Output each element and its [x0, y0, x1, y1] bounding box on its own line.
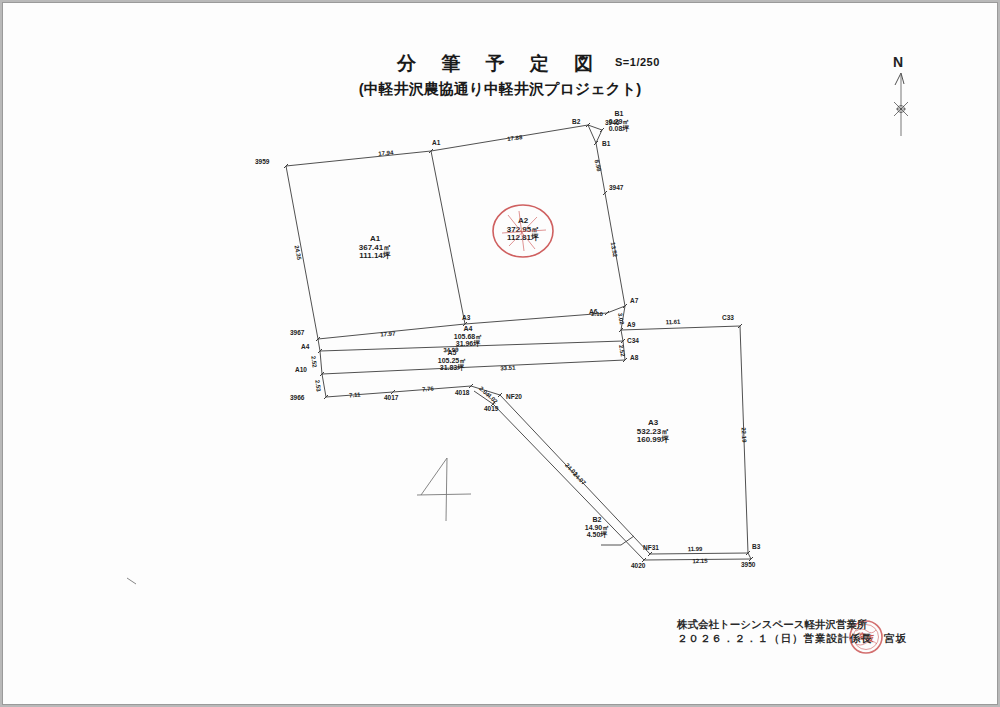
survey-point-label: A7 — [630, 297, 639, 304]
survey-point-label: NF20 — [506, 393, 522, 400]
boundary-line — [431, 151, 465, 324]
parcel-text: 105.25㎡ — [438, 357, 466, 364]
scanned-plan-page: 分 筆 予 定 図 S=1/250 (中軽井沢農協通り中軽井沢プロジェクト) N… — [2, 2, 998, 705]
parcel-text: A4 — [464, 325, 473, 332]
parcel-text: B2 — [593, 516, 602, 523]
survey-point-label: 3950 — [741, 561, 756, 568]
pencil-mark — [421, 458, 447, 495]
survey-point-label: C33 — [722, 314, 734, 321]
parcel-text: 14.90㎡ — [585, 524, 610, 531]
parcel-label-b1: B10.29㎡0.08坪 — [609, 110, 630, 132]
dimension-label: 2.53 — [314, 380, 322, 393]
boundary-line — [650, 553, 748, 554]
boundary-line — [474, 391, 644, 560]
survey-point-label: 3967 — [290, 329, 305, 336]
survey-point-label: A10 — [295, 366, 307, 373]
dimension-label: 33.51 — [500, 365, 516, 372]
parcel-label-a5: A5105.25㎡31.83坪 — [438, 349, 466, 371]
survey-point-label: B3 — [752, 543, 761, 550]
parcel-text: 0.08坪 — [609, 125, 630, 132]
survey-point-label: A3 — [462, 314, 471, 321]
survey-point-label: 4020 — [631, 562, 646, 569]
plan-drawing: N 宮坂 3959A1B23946B13947A7A6A9C34A8C33396… — [3, 3, 999, 706]
dimension-label: 13.52 — [610, 242, 619, 258]
survey-point-label: C34 — [627, 337, 639, 344]
survey-point-label: A9 — [627, 321, 636, 328]
boundary-line — [588, 125, 602, 143]
dimension-label: 2.52 — [618, 344, 626, 357]
parcel-text: 4.50坪 — [587, 531, 608, 538]
dimension-label: 7.76 — [422, 386, 435, 393]
boundary-line — [621, 326, 740, 330]
parcel-label-a1: A1367.41㎡111.14坪 — [359, 234, 391, 260]
survey-point-label: 4019 — [484, 405, 499, 412]
dimension-label: 2.10 — [591, 311, 603, 317]
parcel-text: 0.29㎡ — [609, 118, 630, 125]
survey-point-label: 3959 — [255, 158, 270, 165]
dimension-label: 17.88 — [507, 134, 523, 142]
dimension-label: 8.98 — [594, 159, 603, 172]
dimension-label: 22.19 — [741, 427, 748, 443]
dimension-label: 12.15 — [692, 558, 708, 564]
survey-point-label: A1 — [432, 139, 441, 146]
parcel-label-a3: A3532.23㎡160.99坪 — [637, 418, 669, 444]
north-arrow: N — [893, 54, 908, 136]
parcel-text: A5 — [448, 349, 457, 356]
parcel-text: 105.68㎡ — [454, 333, 482, 340]
survey-point-label: B2 — [572, 118, 581, 125]
dimension-label: 3.02 — [617, 312, 625, 325]
survey-point-label: A4 — [301, 343, 310, 350]
boundary-line — [748, 553, 751, 559]
survey-point-label: 3966 — [290, 394, 305, 401]
survey-point-tick — [600, 128, 604, 132]
parcel-text: B1 — [615, 110, 624, 117]
survey-point-label: B1 — [602, 140, 611, 147]
dimension-label: 7.11 — [349, 392, 361, 399]
survey-point-label: A8 — [630, 354, 639, 361]
parcel-label-b2: B214.90㎡4.50坪 — [585, 516, 610, 538]
boundary-line — [326, 386, 471, 397]
parcel-label-a2: A2372.95㎡112.81坪 — [493, 205, 553, 257]
parcel-text: 111.14坪 — [359, 251, 391, 260]
parcel-text: 160.99坪 — [637, 435, 669, 444]
pencil-mark — [417, 494, 471, 495]
parcel-text: 31.83坪 — [440, 364, 465, 371]
pencil-mark — [446, 458, 447, 521]
survey-point-label: 4017 — [384, 394, 399, 401]
footer-date-line: ２０２６．２．１（日）営業設計係長 宮坂 — [677, 632, 907, 646]
dimension-label: 17.97 — [380, 330, 396, 337]
dimension-label: 11.61 — [665, 319, 681, 326]
dimension-label: 11.99 — [688, 546, 703, 552]
footer-company-name: 株式会社トーシンスペース軽井沢営業所 — [677, 618, 867, 632]
survey-point-label: 4018 — [455, 389, 470, 396]
north-label: N — [893, 54, 903, 70]
survey-point-label: 3947 — [609, 184, 624, 191]
boundary-line — [322, 360, 625, 374]
boundary-line — [286, 166, 318, 339]
north-arrowhead-icon — [895, 73, 904, 85]
parcel-text: 31.96坪 — [456, 340, 481, 347]
dimension-label: 17.94 — [378, 149, 394, 156]
dimension-label: 24.07 — [572, 471, 587, 486]
parcel-label-a4: A4105.68㎡31.96坪 — [454, 325, 482, 347]
pencil-mark — [127, 578, 136, 584]
survey-point-label: NF31 — [643, 544, 659, 551]
dimension-label: 2.52 — [310, 356, 318, 369]
